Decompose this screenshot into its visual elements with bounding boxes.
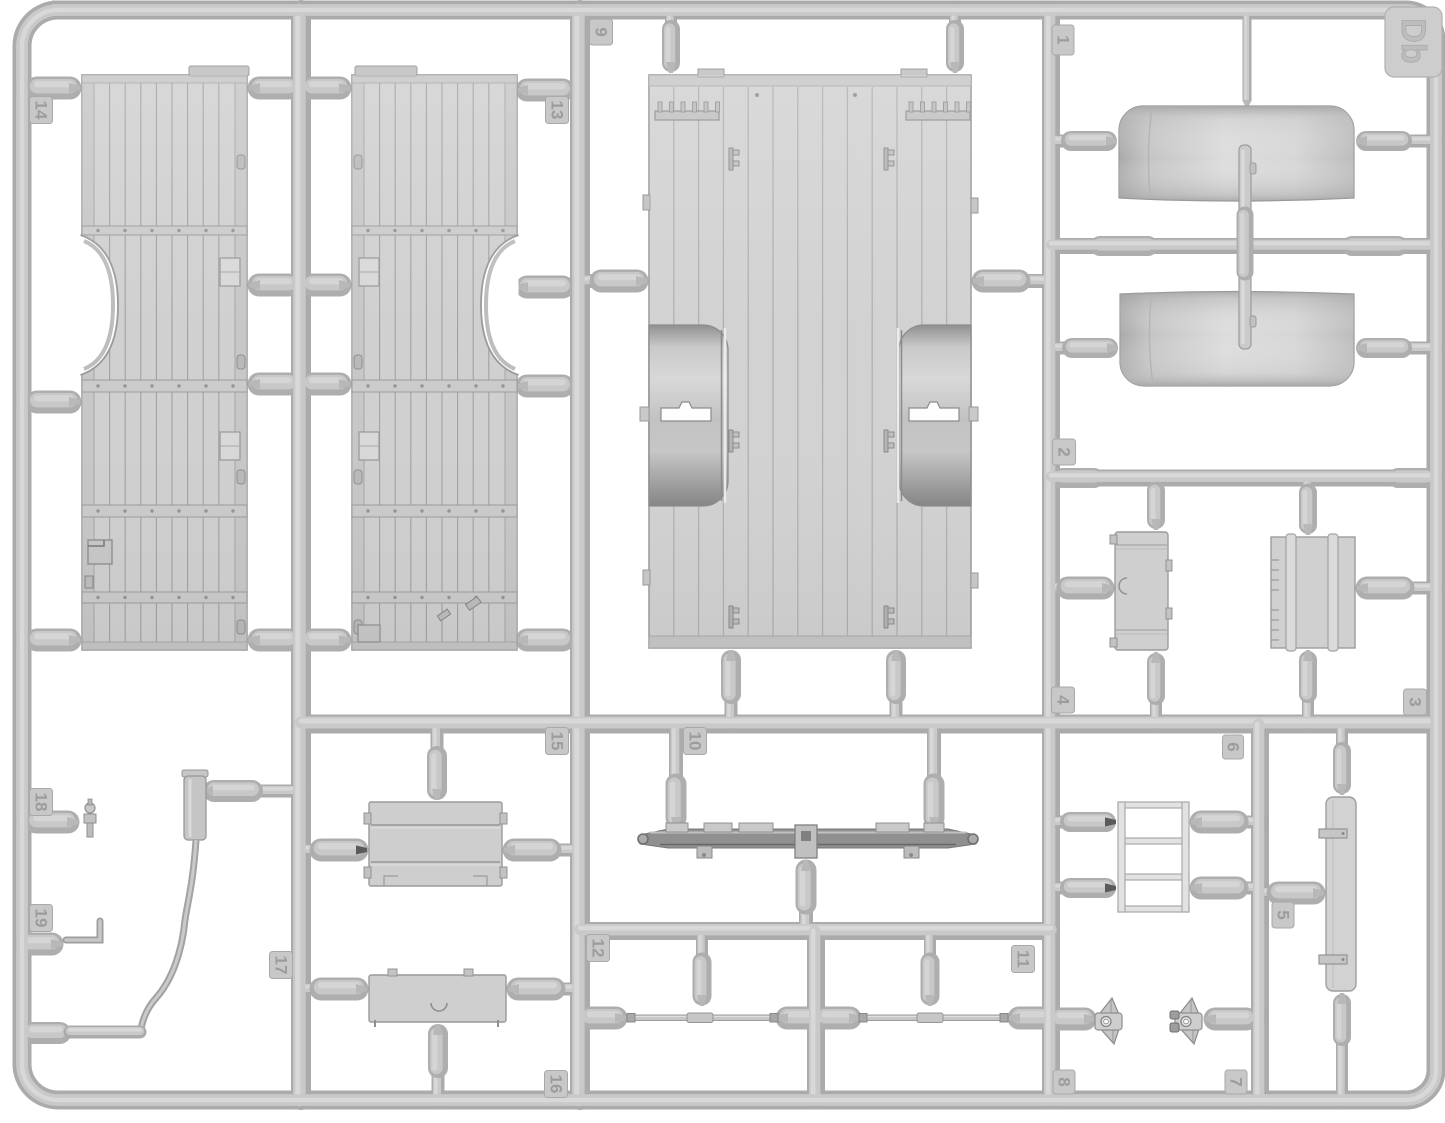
svg-text:18: 18 (32, 793, 51, 812)
svg-text:15: 15 (548, 732, 567, 751)
svg-text:10: 10 (686, 732, 705, 751)
svg-text:13: 13 (548, 101, 567, 120)
svg-text:4: 4 (1054, 695, 1073, 705)
svg-text:8: 8 (1055, 1077, 1074, 1086)
svg-text:7: 7 (1227, 1077, 1246, 1086)
svg-text:11: 11 (1014, 950, 1033, 968)
svg-text:Db: Db (1394, 18, 1432, 63)
svg-text:19: 19 (32, 909, 51, 928)
svg-text:5: 5 (1274, 910, 1293, 919)
svg-text:17: 17 (272, 956, 291, 975)
svg-text:2: 2 (1055, 447, 1074, 456)
svg-text:12: 12 (589, 939, 608, 958)
svg-text:3: 3 (1406, 697, 1425, 706)
svg-text:9: 9 (592, 27, 611, 36)
svg-text:14: 14 (32, 101, 51, 120)
svg-text:16: 16 (547, 1075, 566, 1094)
svg-text:6: 6 (1224, 742, 1243, 751)
svg-text:1: 1 (1054, 35, 1073, 44)
